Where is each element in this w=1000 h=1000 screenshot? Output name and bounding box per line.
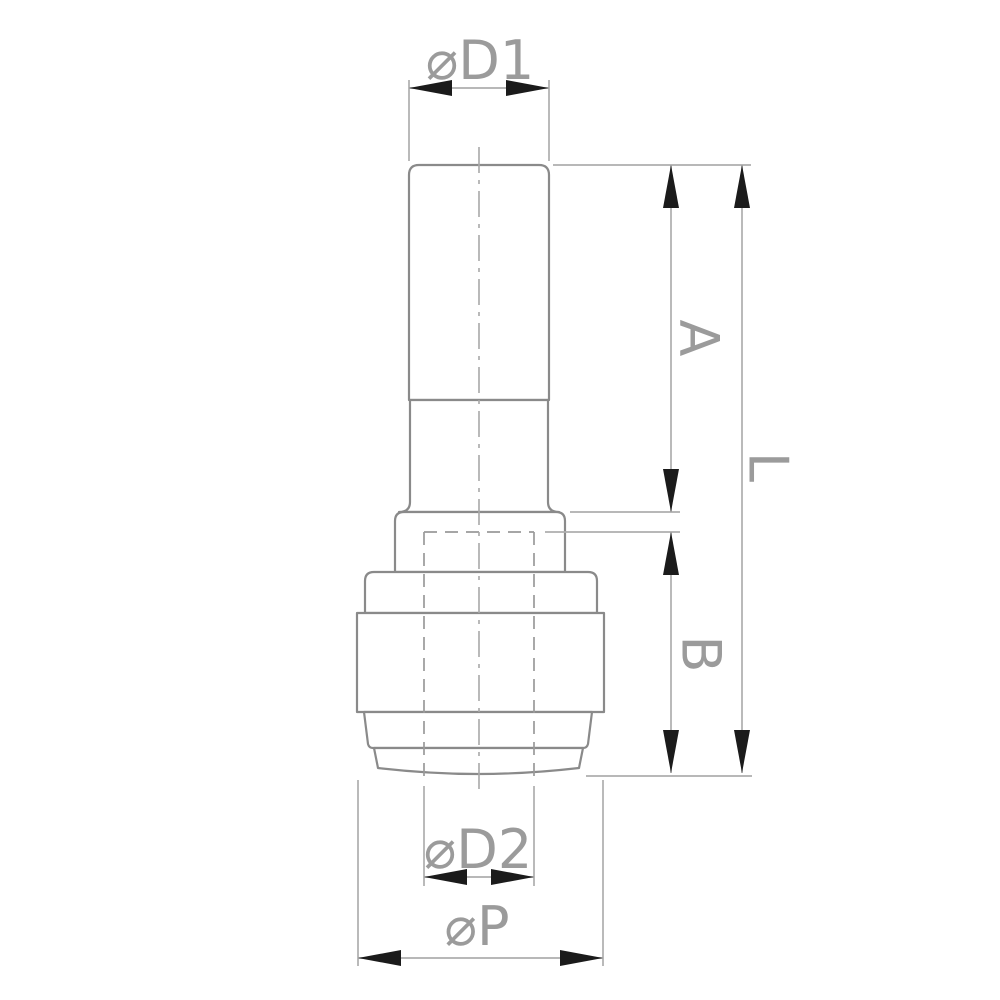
l-arrow-top [734, 165, 750, 208]
dimension-l: L [734, 165, 800, 773]
a-label: A [668, 320, 731, 357]
b-label: B [670, 635, 733, 672]
technical-drawing: ⌀D1 A B L ⌀D2 [0, 0, 1000, 1000]
p-arrow-left [358, 950, 401, 966]
b-arrow-bottom [663, 730, 679, 773]
drawing-canvas: ⌀D1 A B L ⌀D2 [0, 0, 1000, 1000]
dimension-d2: ⌀D2 [424, 786, 534, 886]
d2-label: ⌀D2 [424, 818, 532, 881]
a-arrow-bottom [663, 469, 679, 512]
collar-outline [395, 512, 565, 572]
dimension-b: B [663, 532, 733, 773]
p-arrow-right [560, 950, 603, 966]
body-outline [357, 613, 604, 712]
fitting-outline [357, 165, 604, 774]
d1-label: ⌀D1 [426, 29, 534, 92]
dimension-a: A [663, 165, 731, 512]
lower-ring-outline [364, 712, 592, 748]
b-arrow-top [663, 532, 679, 575]
p-label: ⌀P [444, 895, 509, 958]
body-top-cap-outline [365, 572, 597, 613]
a-arrow-top [663, 165, 679, 208]
l-arrow-bottom [734, 730, 750, 773]
dimension-d1: ⌀D1 [409, 29, 549, 161]
l-label: L [737, 452, 800, 482]
